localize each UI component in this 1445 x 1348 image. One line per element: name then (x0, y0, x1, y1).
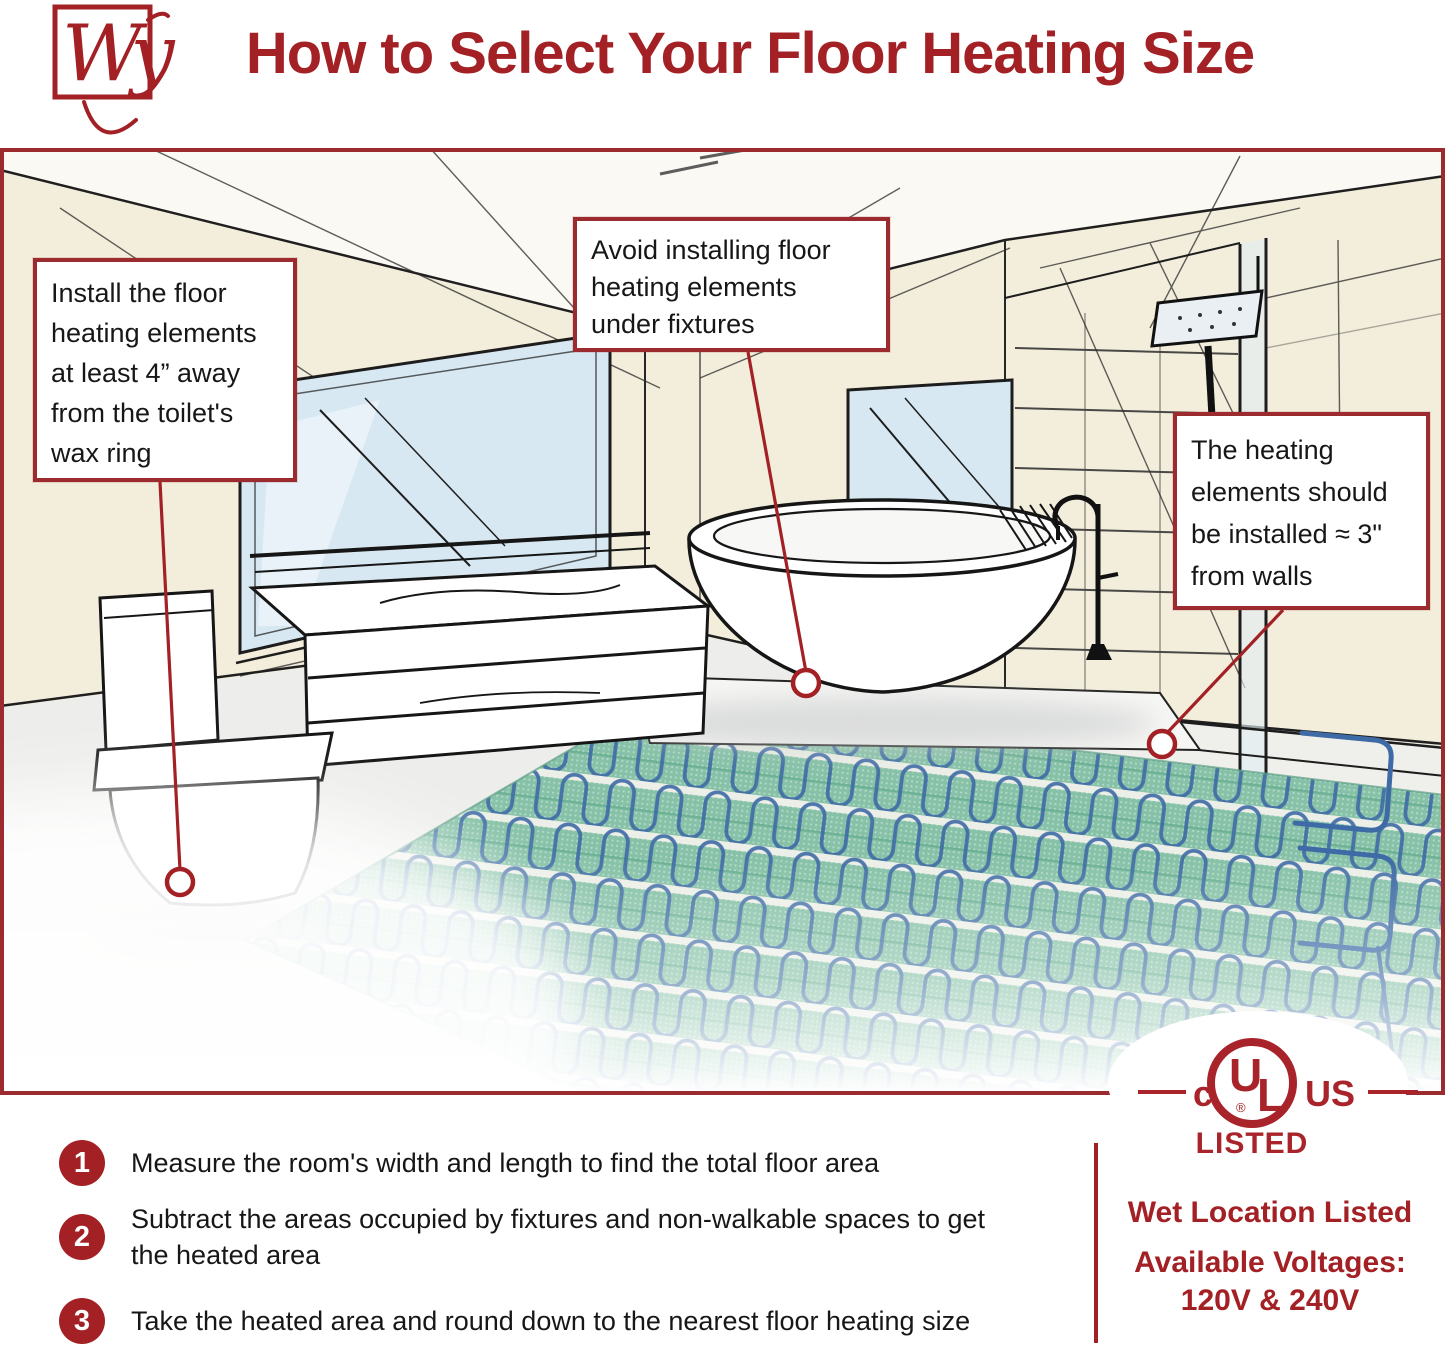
illustration-border-right (1441, 148, 1445, 1095)
callout-wall-clearance: The heating elements should be installed… (1173, 412, 1430, 610)
callout-line: Avoid installing floor (591, 232, 874, 269)
wet-location-label: Wet Location Listed (1105, 1196, 1435, 1230)
step-text: Take the heated area and round down to t… (131, 1303, 1011, 1339)
illustration-border-left (0, 148, 4, 1095)
voltages-label: Available Voltages: (1105, 1246, 1435, 1280)
ul-monogram-l: L (1257, 1069, 1285, 1121)
callout-line: from the toilet's (51, 393, 281, 433)
step-text: Measure the room's width and length to f… (131, 1145, 1011, 1181)
step-item-3: 3 Take the heated area and round down to… (59, 1298, 1049, 1344)
callout-line: at least 4” away (51, 353, 281, 393)
infographic-page: Wy How to Select Your Floor Heating Size (0, 0, 1445, 1348)
callout-line: wax ring (51, 433, 281, 473)
ul-listed-logo: c U L ® US LISTED (1100, 1005, 1430, 1180)
callout-line: be installed ≈ 3" (1191, 513, 1414, 555)
callout-line: Install the floor (51, 273, 281, 313)
callout-line: The heating (1191, 429, 1414, 471)
step-item-2: 2 Subtract the areas occupied by fixture… (59, 1201, 1049, 1273)
voltages-value: 120V & 240V (1105, 1284, 1435, 1318)
callout-line: heating elements (591, 269, 874, 306)
step-item-1: 1 Measure the room's width and length to… (59, 1140, 1049, 1186)
step-number-badge: 3 (59, 1298, 105, 1344)
ul-us-mark: US (1305, 1073, 1355, 1114)
page-title: How to Select Your Floor Heating Size (200, 20, 1300, 87)
illustration-border-top (0, 148, 1445, 152)
callout-line: heating elements (51, 313, 281, 353)
marker-toilet (167, 869, 193, 895)
callout-line: under fixtures (591, 306, 874, 343)
callout-toilet-clearance: Install the floor heating elements at le… (33, 258, 297, 482)
vertical-divider (1094, 1143, 1098, 1343)
logo-monogram: Wy (62, 9, 175, 99)
marker-wall-gap (1149, 731, 1175, 757)
ul-registered-mark: ® (1236, 1100, 1246, 1115)
callout-avoid-fixtures: Avoid installing floor heating elements … (573, 217, 890, 352)
ul-listed-label: LISTED (1196, 1127, 1309, 1160)
step-number-badge: 1 (59, 1140, 105, 1186)
callout-line: elements should (1191, 471, 1414, 513)
callout-line: from walls (1191, 555, 1414, 597)
step-number-badge: 2 (59, 1214, 105, 1260)
step-text: Subtract the areas occupied by fixtures … (131, 1201, 1011, 1273)
marker-bathtub (793, 670, 819, 696)
